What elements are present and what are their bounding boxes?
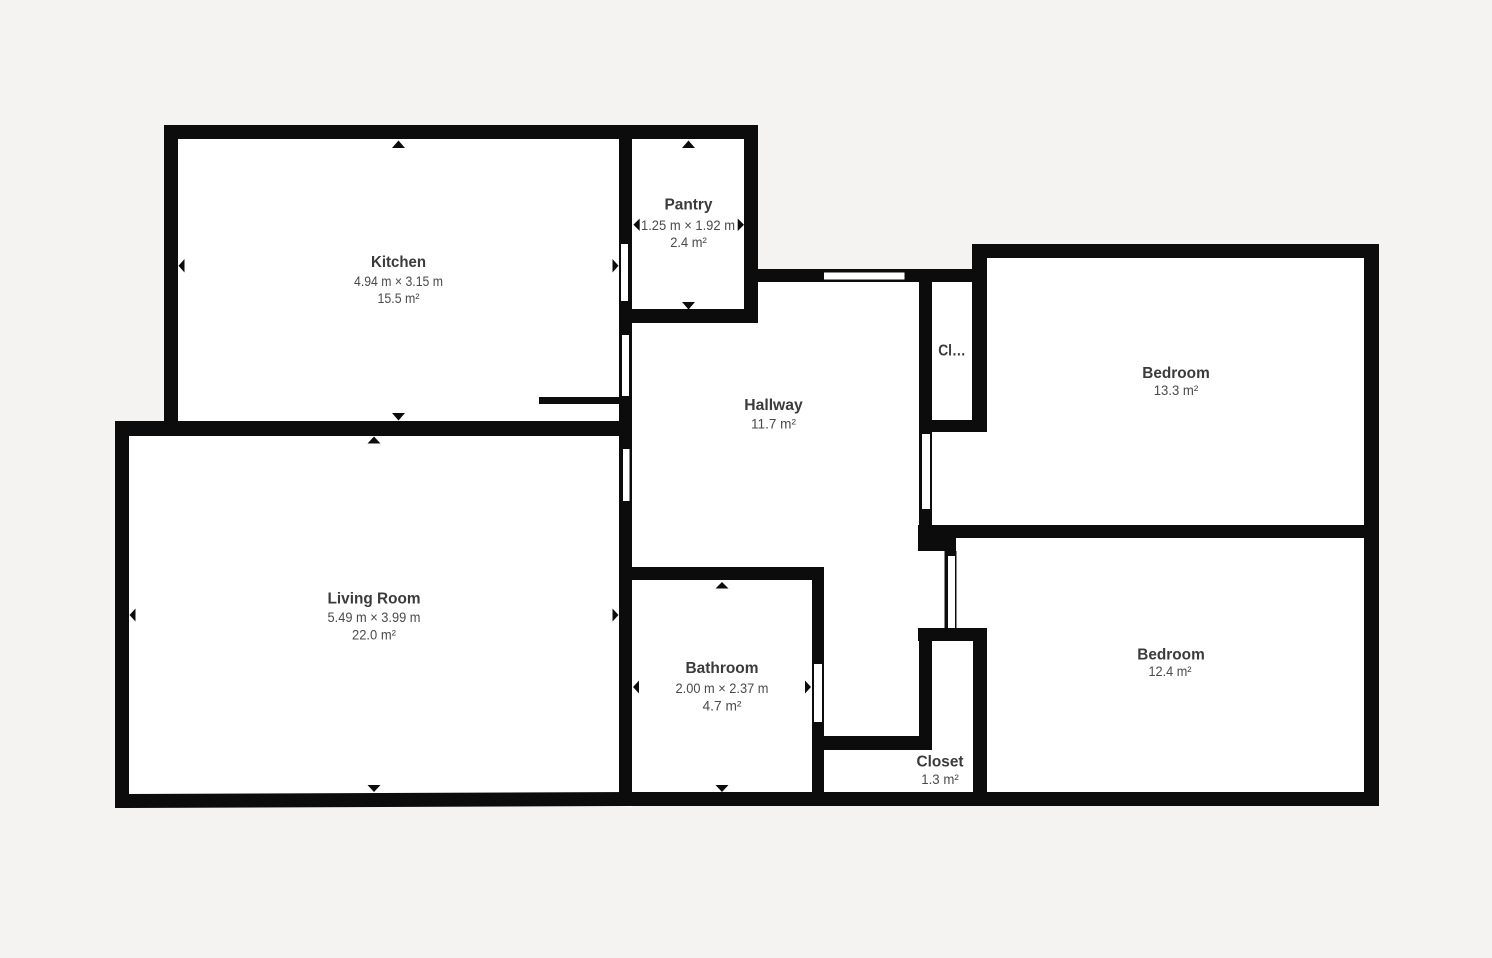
svg-text:2.4 m²: 2.4 m²: [670, 235, 707, 250]
svg-text:Kitchen: Kitchen: [371, 254, 426, 271]
svg-text:22.0 m²: 22.0 m²: [352, 628, 396, 643]
svg-text:15.5 m²: 15.5 m²: [378, 291, 420, 306]
svg-text:Pantry: Pantry: [665, 197, 713, 214]
svg-text:Cl…: Cl…: [938, 343, 966, 360]
svg-text:11.7 m²: 11.7 m²: [751, 417, 797, 432]
svg-text:Hallway: Hallway: [744, 397, 803, 414]
svg-text:1.25 m × 1.92 m: 1.25 m × 1.92 m: [641, 218, 735, 233]
svg-text:Bedroom: Bedroom: [1137, 647, 1205, 664]
svg-text:13.3 m²: 13.3 m²: [1154, 383, 1199, 398]
svg-text:Closet: Closet: [917, 754, 965, 771]
svg-text:5.49 m × 3.99 m: 5.49 m × 3.99 m: [328, 610, 421, 625]
svg-text:4.7 m²: 4.7 m²: [703, 699, 743, 714]
svg-text:1.3 m²: 1.3 m²: [921, 772, 959, 787]
svg-text:12.4 m²: 12.4 m²: [1149, 664, 1192, 679]
svg-text:4.94 m × 3.15 m: 4.94 m × 3.15 m: [354, 274, 443, 289]
svg-text:Bedroom: Bedroom: [1142, 365, 1210, 382]
svg-text:Living Room: Living Room: [328, 591, 421, 608]
svg-text:2.00 m × 2.37 m: 2.00 m × 2.37 m: [676, 681, 769, 696]
svg-text:Bathroom: Bathroom: [686, 660, 759, 677]
